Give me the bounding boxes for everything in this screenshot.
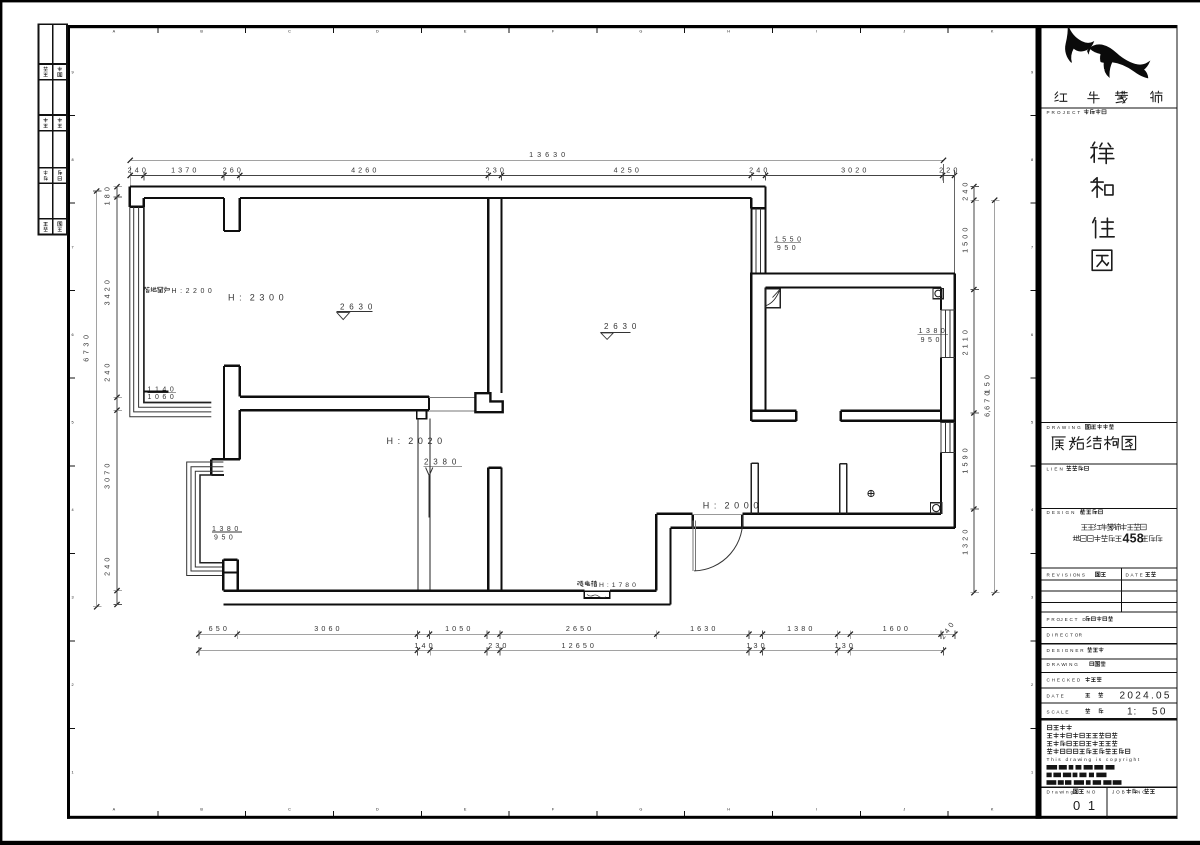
svg-text:2 4 0: 2 4 0 xyxy=(103,363,112,382)
svg-text:2 3 0: 2 3 0 xyxy=(486,165,505,174)
svg-text:3: 3 xyxy=(72,596,74,600)
svg-text:1 5 0 0: 1 5 0 0 xyxy=(961,227,970,253)
svg-text:1 3 2 0: 1 3 2 0 xyxy=(961,529,970,555)
svg-text:T h i s d r a wi n g i s: T h i s d r a wi n g i s c o p y r i g h… xyxy=(1047,757,1140,763)
svg-text:1: 1 xyxy=(1031,771,1033,775)
svg-text:D E S I G N E R: D E S I G N E R xyxy=(1047,648,1085,653)
svg-text:6: 6 xyxy=(72,333,74,337)
svg-text:9 5 0: 9 5 0 xyxy=(777,245,797,252)
svg-text:1 3 0: 1 3 0 xyxy=(746,641,765,650)
svg-text:1: 1 xyxy=(72,771,74,775)
svg-text:D r a wi n g: D r a wi n g xyxy=(1047,790,1074,795)
svg-text:2 6 3 0: 2 6 3 0 xyxy=(604,322,638,331)
svg-text:D: D xyxy=(376,808,379,812)
svg-text:9: 9 xyxy=(1031,71,1033,75)
svg-text:4: 4 xyxy=(72,508,74,512)
svg-text:N O: N O xyxy=(1087,790,1096,795)
svg-text:9: 9 xyxy=(72,71,74,75)
svg-text:2 4 0: 2 4 0 xyxy=(961,182,970,201)
svg-text:3 0 6 0: 3 0 6 0 xyxy=(314,624,340,633)
svg-text:I: I xyxy=(816,808,817,812)
svg-text:B: B xyxy=(200,808,203,812)
svg-text:5: 5 xyxy=(72,421,74,425)
svg-text:3 4 2 0: 3 4 2 0 xyxy=(103,280,112,306)
svg-text:E: E xyxy=(464,808,467,812)
svg-text:6: 6 xyxy=(1031,333,1033,337)
svg-text:H : 1 7 8 0: H : 1 7 8 0 xyxy=(599,582,636,589)
svg-text:6 5 0: 6 5 0 xyxy=(209,624,228,633)
svg-text:3 0 2 0: 3 0 2 0 xyxy=(841,165,867,174)
svg-text:9 5 0: 9 5 0 xyxy=(921,337,941,344)
svg-text:G: G xyxy=(639,808,642,812)
svg-text:7: 7 xyxy=(1031,246,1033,250)
svg-text:1 3 6 3 0: 1 3 6 3 0 xyxy=(529,150,566,159)
svg-text:H : 2 3 0 0: H : 2 3 0 0 xyxy=(228,292,285,302)
svg-text:J O B: J O B xyxy=(1112,790,1125,795)
svg-text:C: C xyxy=(288,808,291,812)
svg-text:1 0 6 0: 1 0 6 0 xyxy=(148,394,175,401)
svg-text:6 7 3 0: 6 7 3 0 xyxy=(82,334,91,362)
svg-text:2: 2 xyxy=(1031,683,1033,687)
svg-text:2: 2 xyxy=(72,683,74,687)
svg-text:P R OJ E C T D: P R OJ E C T D xyxy=(1047,617,1087,622)
svg-text:3 0 7 0: 3 0 7 0 xyxy=(103,463,112,489)
svg-text:D I R E C T OR: D I R E C T OR xyxy=(1047,633,1083,638)
svg-text:2 6 5 0: 2 6 5 0 xyxy=(566,624,592,633)
svg-text:R E V I S I ON S: R E V I S I ON S xyxy=(1047,573,1086,578)
svg-text:E: E xyxy=(464,29,467,33)
svg-text:7: 7 xyxy=(72,246,74,250)
svg-text:6,6 7 0: 6,6 7 0 xyxy=(983,391,992,417)
svg-text:50: 50 xyxy=(1152,707,1168,718)
svg-text:8: 8 xyxy=(72,158,74,162)
svg-text:2024.05: 2024.05 xyxy=(1120,691,1172,702)
svg-text:2 3 8 0: 2 3 8 0 xyxy=(424,458,458,467)
svg-text:S C A L E: S C A L E xyxy=(1047,710,1069,715)
svg-text:1 3 8 0: 1 3 8 0 xyxy=(787,624,813,633)
svg-text:2 3 0: 2 3 0 xyxy=(488,641,507,650)
svg-text:1:: 1: xyxy=(1127,707,1137,718)
svg-text:1 0 5 0: 1 0 5 0 xyxy=(445,624,471,633)
svg-text:2 6 3 0: 2 6 3 0 xyxy=(340,303,374,312)
svg-text:3: 3 xyxy=(1031,596,1033,600)
svg-text:2 2 0: 2 2 0 xyxy=(939,165,958,174)
svg-text:1 6 0 0: 1 6 0 0 xyxy=(883,624,909,633)
svg-text:I: I xyxy=(816,29,817,33)
svg-text:1 3 7 0: 1 3 7 0 xyxy=(171,165,197,174)
svg-text:0 1: 0 1 xyxy=(1073,798,1097,813)
svg-text:C H E C K E D: C H E C K E D xyxy=(1047,678,1081,683)
svg-text:458: 458 xyxy=(1123,532,1144,546)
svg-text:H: H xyxy=(727,29,730,33)
svg-text:4 2 5 0: 4 2 5 0 xyxy=(614,165,640,174)
svg-text:D A T E: D A T E xyxy=(1126,573,1144,578)
svg-text:A: A xyxy=(113,808,116,812)
svg-text:H : 2 2 0 0: H : 2 2 0 0 xyxy=(172,288,213,295)
svg-text:C: C xyxy=(288,29,291,33)
svg-text:4: 4 xyxy=(1031,508,1033,512)
svg-text:2 6 0: 2 6 0 xyxy=(223,165,242,174)
svg-text:1 8 0: 1 8 0 xyxy=(103,187,112,206)
svg-text:5: 5 xyxy=(1031,421,1033,425)
svg-text:2 4 0: 2 4 0 xyxy=(103,557,112,576)
svg-text:B: B xyxy=(200,29,203,33)
svg-text:D E S I G N F: D E S I G N F xyxy=(1047,510,1084,515)
svg-text:H : 2 0 0 0: H : 2 0 0 0 xyxy=(703,501,760,511)
svg-text:A: A xyxy=(113,29,116,33)
svg-text:8: 8 xyxy=(1031,158,1033,162)
svg-text:1 4 0: 1 4 0 xyxy=(414,641,433,650)
svg-text:4 2 6 0: 4 2 6 0 xyxy=(351,165,377,174)
svg-text:2 4 0: 2 4 0 xyxy=(128,165,147,174)
svg-text:2 1 1 0: 2 1 1 0 xyxy=(961,330,970,356)
svg-text:2 4 0: 2 4 0 xyxy=(749,165,768,174)
svg-text:H: H xyxy=(727,808,730,812)
svg-text:9 5 0: 9 5 0 xyxy=(214,535,234,542)
svg-text:D A T E: D A T E xyxy=(1047,694,1065,699)
svg-text:1 2 6 5 0: 1 2 6 5 0 xyxy=(562,641,595,650)
svg-text:G: G xyxy=(639,29,642,33)
svg-text:H : 2 0 2 0: H : 2 0 2 0 xyxy=(387,436,444,446)
svg-text:L I E N: L I E N xyxy=(1047,467,1064,472)
svg-text:1 3 0: 1 3 0 xyxy=(835,641,854,650)
svg-text:D R A WI N G: D R A WI N G xyxy=(1047,662,1079,667)
svg-text:D: D xyxy=(376,29,379,33)
svg-text:1 6 3 0: 1 6 3 0 xyxy=(690,624,716,633)
svg-text:1 5 9 0: 1 5 9 0 xyxy=(961,448,970,474)
svg-text:J: J xyxy=(903,808,905,812)
svg-text:J: J xyxy=(903,29,905,33)
svg-text:1 5 0: 1 5 0 xyxy=(983,375,992,394)
